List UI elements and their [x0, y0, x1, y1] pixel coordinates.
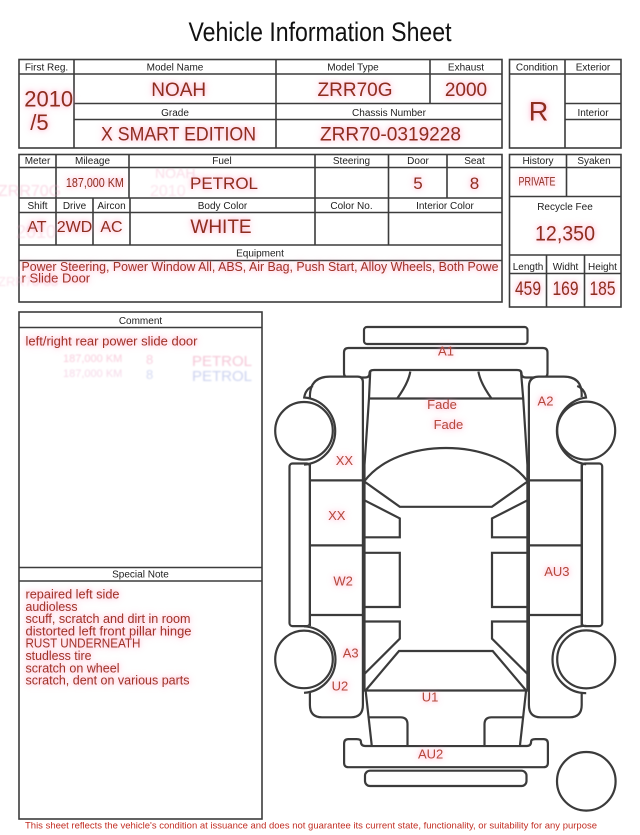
svg-text:Condition: Condition [516, 63, 558, 74]
svg-text:Exhaust: Exhaust [448, 63, 484, 74]
svg-text:Meter: Meter [25, 156, 51, 167]
svg-text:Model Type: Model Type [327, 63, 379, 74]
svg-text:Door: Door [407, 156, 429, 167]
svg-text:AU3: AU3 [544, 564, 569, 579]
svg-text:Recycle Fee: Recycle Fee [537, 202, 593, 213]
svg-text:PETROL: PETROL [190, 174, 258, 193]
svg-text:Equipment: Equipment [236, 249, 284, 260]
svg-text:R: R [529, 97, 549, 127]
svg-text:ZRR70-03: ZRR70-03 [0, 274, 58, 289]
svg-text:History: History [522, 156, 553, 167]
svg-text:Exterior: Exterior [576, 63, 611, 74]
svg-text:Model Name: Model Name [147, 63, 204, 74]
svg-text:U2: U2 [332, 679, 349, 694]
svg-text:PRIVATE: PRIVATE [519, 175, 556, 189]
svg-text:NOAH: NOAH [155, 165, 195, 181]
svg-text:scratch, dent on various parts: scratch, dent on various parts [26, 673, 190, 688]
svg-text:187,000 KM: 187,000 KM [63, 368, 122, 380]
svg-text:First Reg.: First Reg. [25, 63, 68, 74]
svg-text:XX: XX [328, 508, 346, 523]
svg-text:A3: A3 [343, 646, 359, 661]
svg-text:Vehicle Information Sheet: Vehicle Information Sheet [189, 17, 452, 47]
svg-text:XX: XX [336, 453, 354, 468]
svg-text:2010: 2010 [16, 222, 56, 242]
svg-text:187,000 KM: 187,000 KM [63, 353, 122, 365]
svg-text:PETROL: PETROL [192, 368, 252, 385]
svg-text:Color No.: Color No. [330, 201, 372, 212]
svg-text:ZRR70-0319228: ZRR70-0319228 [320, 125, 461, 146]
svg-text:2000: 2000 [445, 80, 487, 101]
svg-text:Power Steering, Power Window: Power Steering, Power Window All, ABS, A… [22, 259, 499, 274]
svg-text:Body Color: Body Color [198, 201, 248, 212]
svg-text:WHITE: WHITE [190, 217, 251, 238]
svg-text:ZRR70G: ZRR70G [318, 80, 393, 101]
svg-text:169: 169 [553, 279, 579, 300]
svg-text:Shift: Shift [27, 201, 47, 212]
svg-text:U1: U1 [422, 690, 439, 705]
svg-text:Special Note: Special Note [112, 570, 169, 581]
svg-text:Grade: Grade [161, 108, 189, 119]
svg-text:AU2: AU2 [418, 747, 443, 762]
svg-text:187,000 KM: 187,000 KM [66, 176, 124, 190]
svg-text:12,350: 12,350 [535, 223, 595, 246]
svg-text:X SMART EDITION: X SMART EDITION [101, 125, 256, 146]
svg-text:459: 459 [515, 279, 541, 300]
svg-text:8: 8 [146, 367, 153, 382]
svg-text:A1: A1 [438, 344, 454, 359]
svg-text:Widht: Widht [553, 262, 579, 273]
svg-text:Comment: Comment [119, 316, 163, 327]
svg-text:Fade: Fade [434, 417, 464, 432]
svg-text:A2: A2 [538, 394, 554, 409]
svg-text:Drive: Drive [63, 201, 87, 212]
svg-text:Fuel: Fuel [212, 156, 231, 167]
svg-text:2010: 2010 [24, 86, 73, 111]
svg-text:Interior Color: Interior Color [416, 201, 474, 212]
svg-text:Length: Length [513, 262, 544, 273]
svg-text:/5: /5 [30, 110, 48, 135]
svg-text:Syaken: Syaken [577, 156, 610, 167]
svg-text:ZRR70G: ZRR70G [0, 183, 61, 200]
svg-text:2010: 2010 [150, 183, 186, 200]
svg-text:5: 5 [413, 174, 422, 193]
svg-text:Fade: Fade [427, 397, 457, 412]
svg-text:W2: W2 [333, 574, 353, 589]
svg-text:NOAH: NOAH [151, 80, 206, 101]
svg-text:This sheet reflects the vehicl: This sheet reflects the vehicle's condit… [25, 821, 597, 832]
svg-text:185: 185 [590, 279, 616, 300]
svg-text:Chassis Number: Chassis Number [352, 108, 427, 119]
svg-text:8: 8 [470, 174, 479, 193]
svg-text:Interior: Interior [577, 108, 609, 119]
svg-text:AC: AC [100, 219, 122, 236]
svg-text:8: 8 [146, 352, 153, 367]
svg-text:Steering: Steering [333, 156, 370, 167]
svg-text:Aircon: Aircon [97, 201, 125, 212]
svg-text:left/right rear power slide do: left/right rear power slide door [26, 334, 199, 349]
svg-text:Seat: Seat [464, 156, 485, 167]
svg-text:Mileage: Mileage [75, 156, 110, 167]
svg-text:Height: Height [588, 262, 617, 273]
svg-text:2WD: 2WD [57, 219, 93, 236]
